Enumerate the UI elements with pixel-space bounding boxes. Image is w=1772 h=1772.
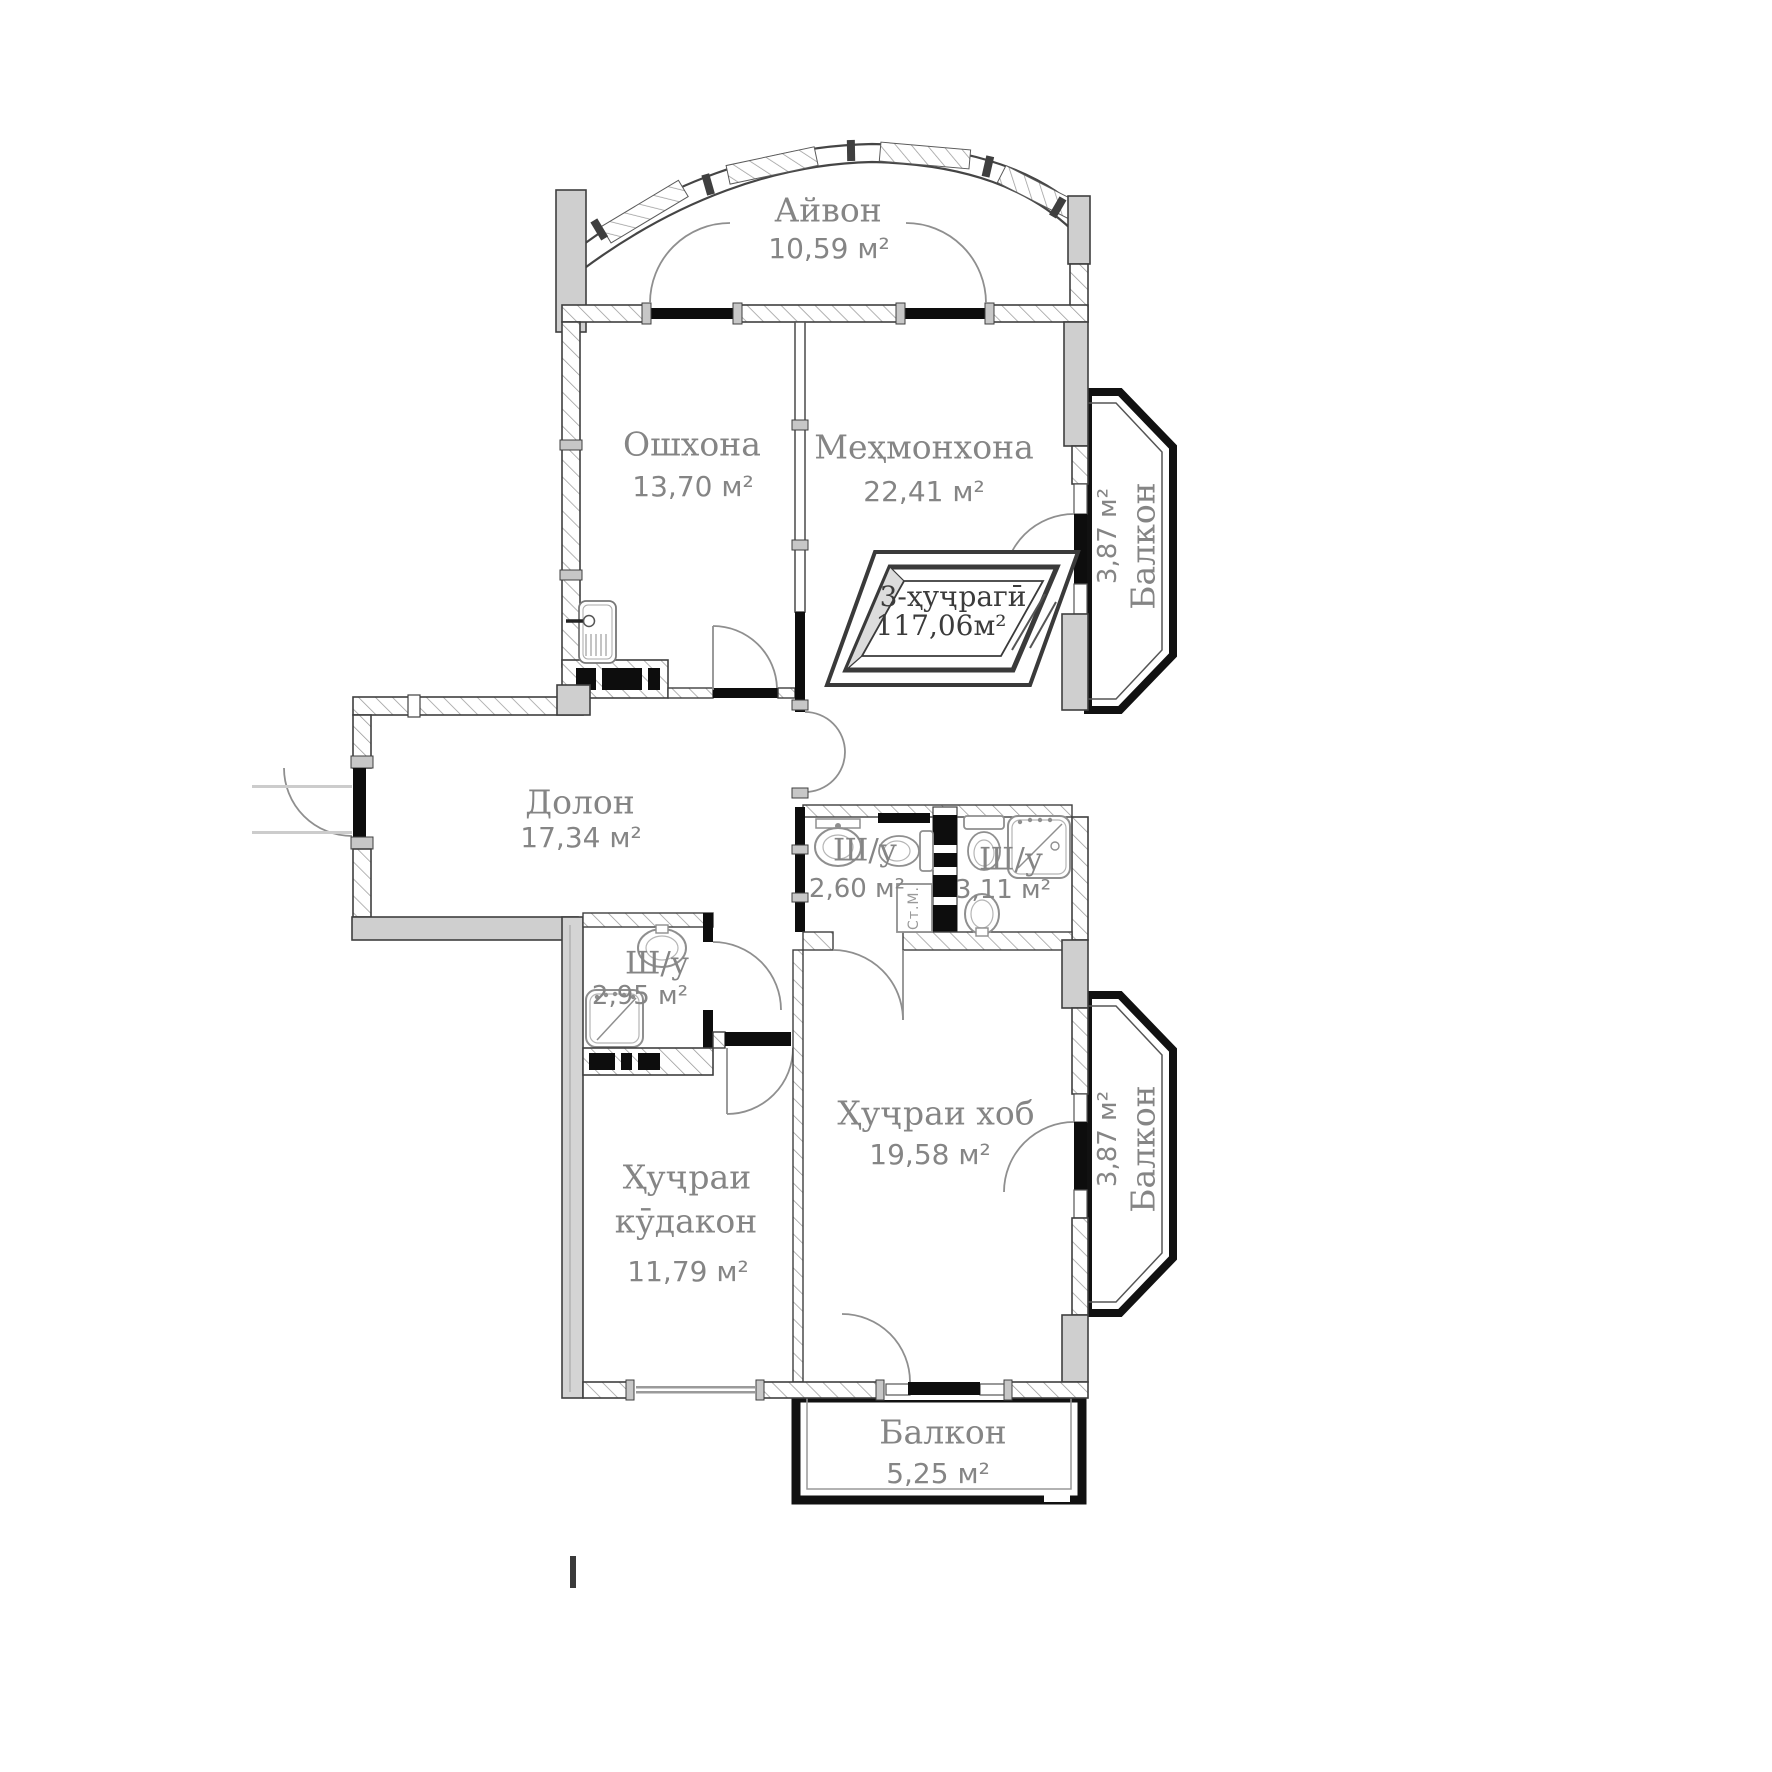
room-label-kudakon-line2: кӯдакон: [615, 1205, 758, 1238]
room-area-dolon: 17,34 м²: [520, 824, 641, 852]
room-label-shu-311: Ш/у: [979, 845, 1043, 876]
room-label-khujrai-khob: Ҳуҷраи хоб: [837, 1097, 1034, 1130]
room-label-shu-260: Ш/у: [833, 836, 897, 867]
balcony-bottom-label: Балкон: [879, 1416, 1006, 1449]
room-label-dolon: Долон: [525, 786, 635, 819]
kitchen-living-divider: [792, 322, 845, 798]
room-label-kudakon-line1: Ҳуҷраи: [623, 1161, 751, 1194]
stamp-type-label: 3-ҳуҷрагӣ: [880, 583, 1027, 611]
balcony-bottom-right-label: Балкон: [1127, 1085, 1160, 1212]
left-lower-wall: [562, 917, 583, 1398]
room-area-kudakon: 11,79 м²: [627, 1258, 748, 1286]
stamp-total-area: 117,06м²: [876, 612, 1007, 640]
floor-plan: Айвон 10,59 м² Ошхона 13,70 м² Меҳмонхон…: [0, 0, 1772, 1772]
room-label-ayvon: Айвон: [774, 194, 881, 227]
room-area-oshxona: 13,70 м²: [632, 473, 753, 501]
balcony-bottom-area: 5,25 м²: [886, 1460, 990, 1488]
room-label-mehmonxona: Меҳмонхона: [814, 431, 1034, 464]
balcony-top-area: 3,87 м²: [1095, 488, 1121, 584]
room-area-shu-311: 3,11 м²: [955, 877, 1051, 903]
room-area-shu-260: 2,60 м²: [809, 876, 905, 902]
room-area-mehmonxona: 22,41 м²: [863, 478, 984, 506]
balcony-bottom-right-area: 3,87 м²: [1095, 1091, 1121, 1187]
room-label-oshxona: Ошхона: [623, 428, 761, 461]
section-tick: [570, 1556, 576, 1588]
balcony-top-label: Балкон: [1127, 482, 1160, 609]
washing-machine-label: Ст.М.: [907, 886, 921, 930]
room-area-khujrai-khob: 19,58 м²: [869, 1141, 990, 1169]
room-label-shu-295: Ш/у: [625, 949, 689, 980]
room-area-ayvon: 10,59 м²: [768, 235, 889, 263]
room-area-shu-295: 2,95 м²: [592, 983, 688, 1009]
children-door: [713, 1032, 793, 1114]
bottom-wall: [583, 1314, 1088, 1400]
